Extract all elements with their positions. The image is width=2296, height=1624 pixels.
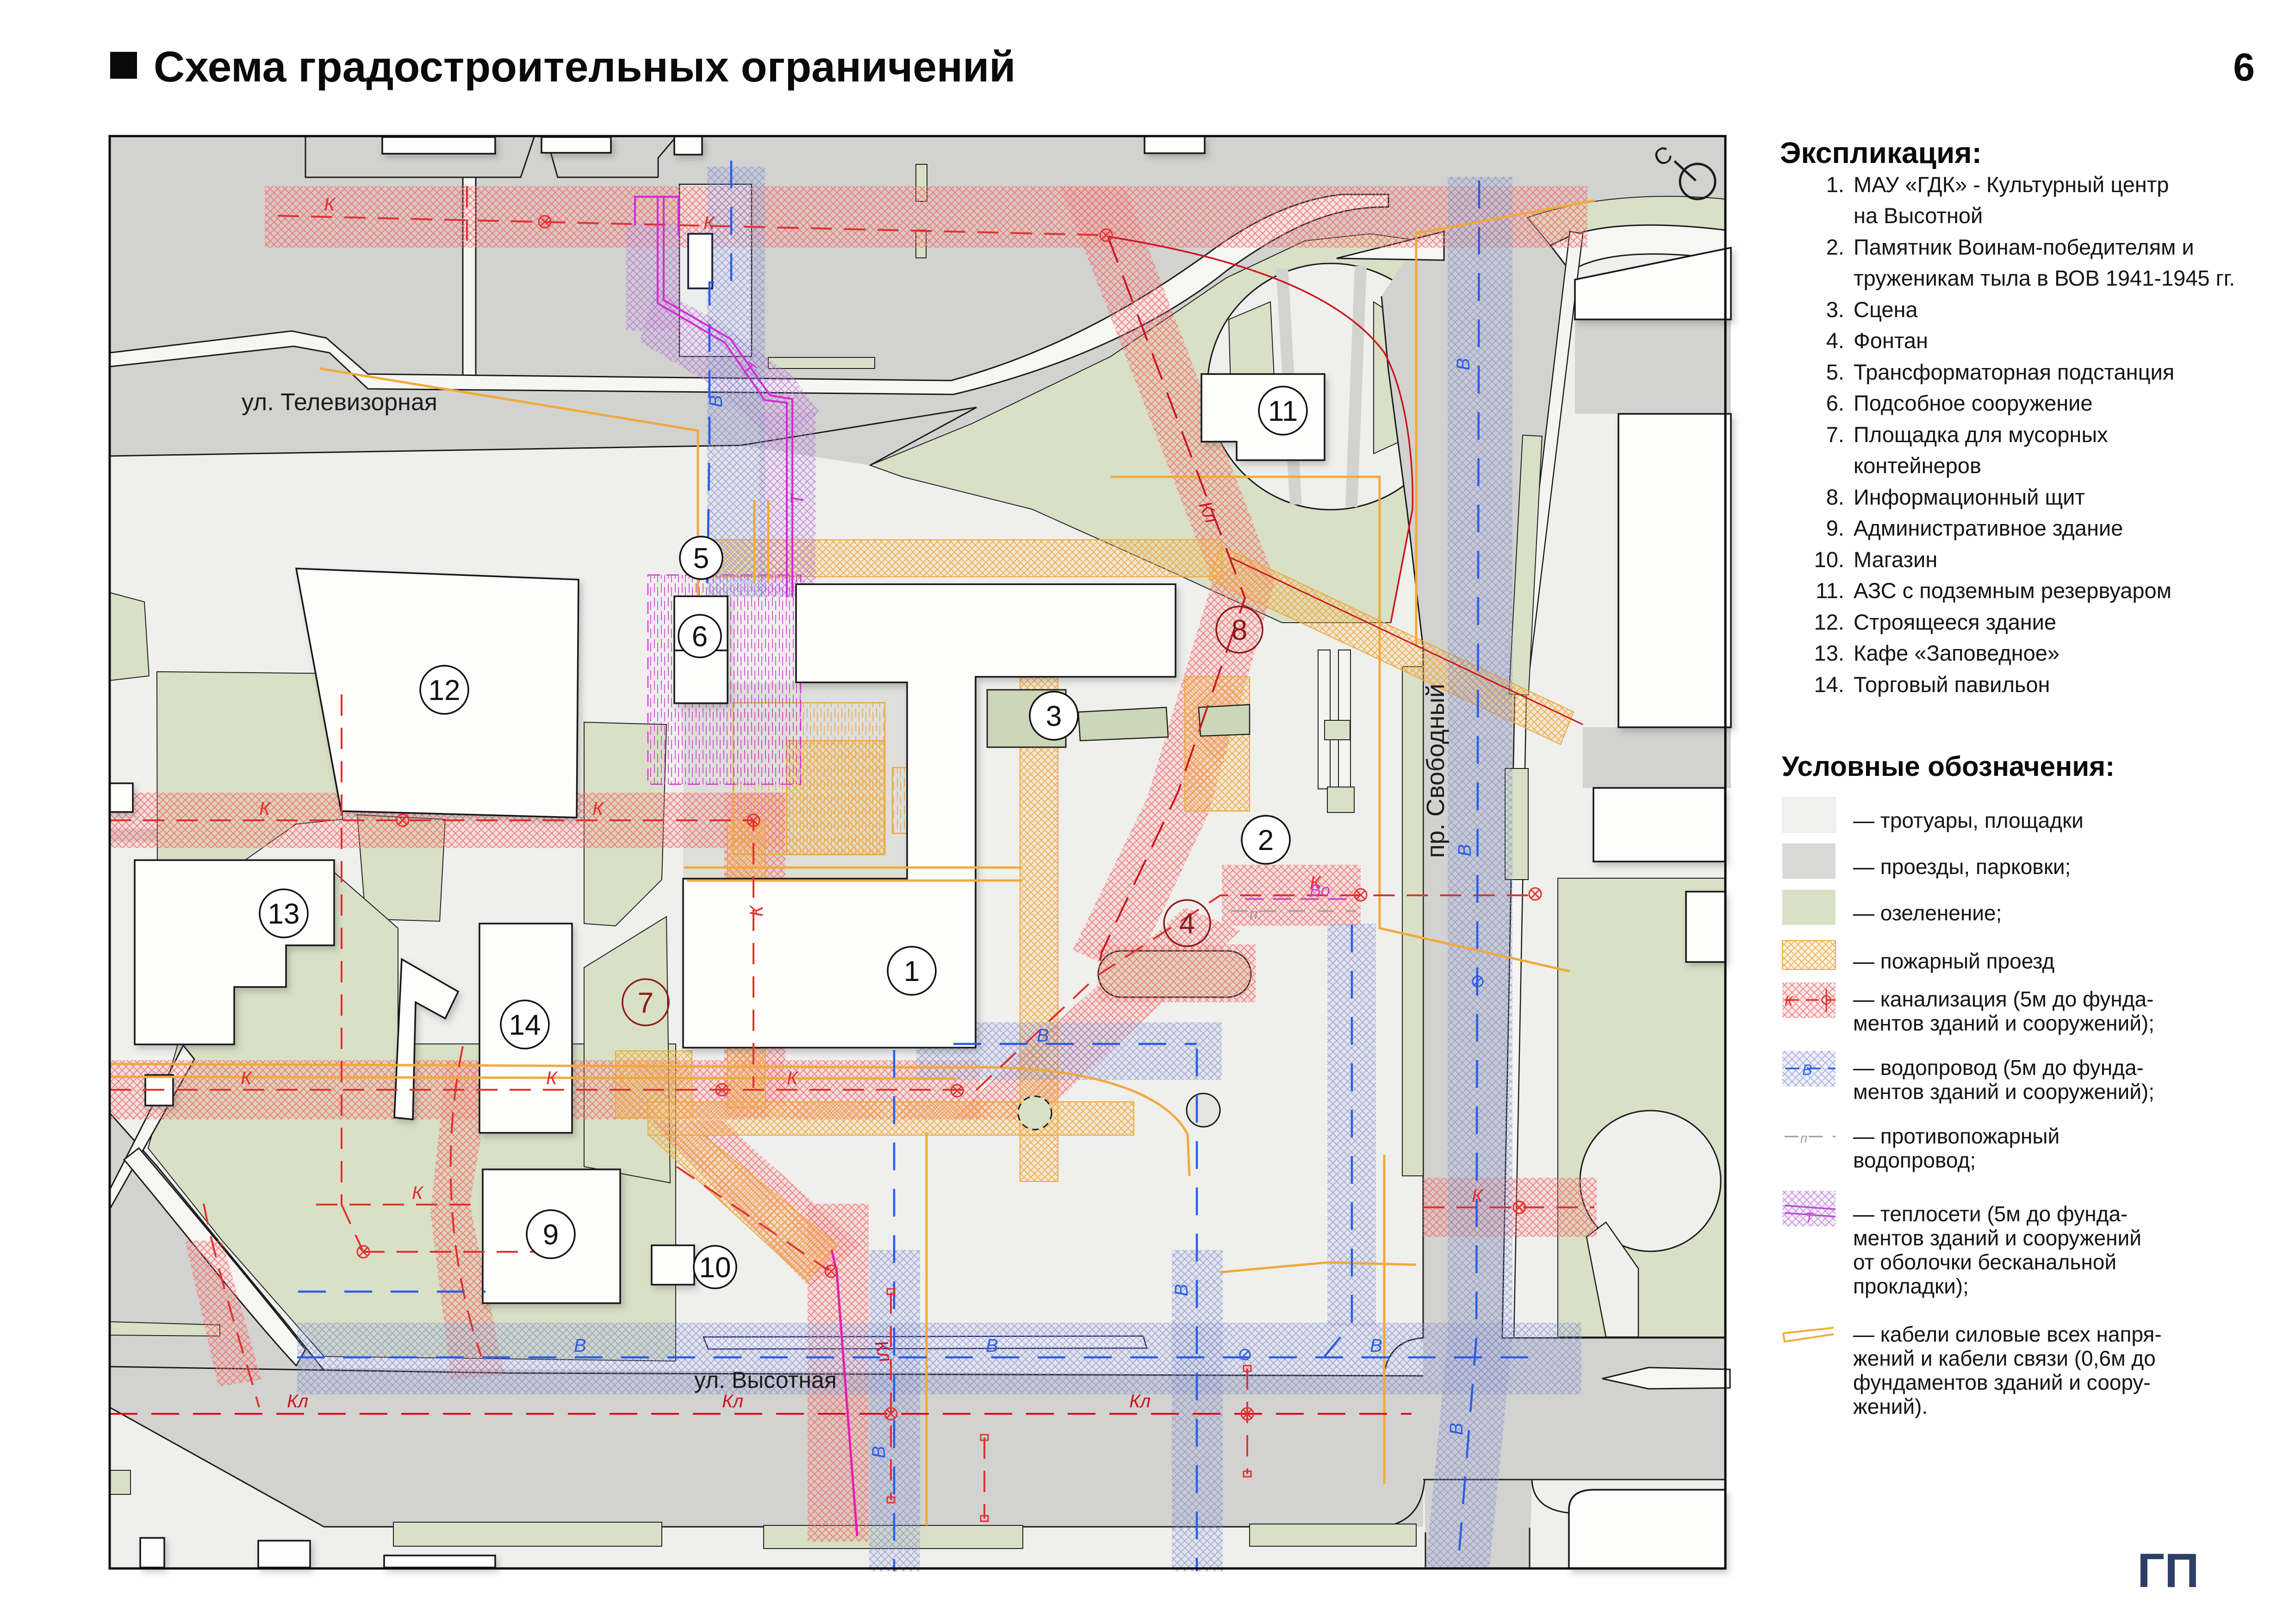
svg-text:3: 3 <box>1046 700 1062 732</box>
svg-text:6: 6 <box>2233 45 2255 89</box>
svg-text:6: 6 <box>692 621 708 653</box>
svg-text:9: 9 <box>543 1219 559 1251</box>
svg-text:8.: 8. <box>1826 485 1844 509</box>
svg-text:— проезды, парковки;: — проезды, парковки; <box>1853 855 2071 879</box>
svg-text:В: В <box>1446 1423 1467 1435</box>
svg-text:11: 11 <box>1268 395 1298 427</box>
svg-text:1: 1 <box>904 956 920 987</box>
svg-text:Площадка для мусорных: Площадка для мусорных <box>1854 422 2108 447</box>
svg-text:МАУ «ГДК» - Культурный центр: МАУ «ГДК» - Культурный центр <box>1854 172 2169 197</box>
svg-text:Во: Во <box>1310 881 1330 899</box>
svg-text:труженикам тыла в ВОВ 1941-194: труженикам тыла в ВОВ 1941-1945 гг. <box>1854 266 2235 290</box>
svg-text:Кл: Кл <box>287 1391 308 1412</box>
svg-text:В: В <box>1171 1284 1192 1296</box>
svg-text:Экспликация:: Экспликация: <box>1780 136 1982 169</box>
svg-text:13.: 13. <box>1814 641 1844 665</box>
svg-text:2.: 2. <box>1826 235 1844 259</box>
svg-text:К: К <box>1472 1186 1484 1206</box>
svg-text:— теплосети (5м до фунда-: — теплосети (5м до фунда- <box>1853 1202 2128 1226</box>
svg-text:Трансформаторная подстанция: Трансформаторная подстанция <box>1854 360 2174 384</box>
svg-text:ментов зданий и сооружений);: ментов зданий и сооружений); <box>1853 1011 2154 1035</box>
svg-text:— кабели силовые всех напря-: — кабели силовые всех напря- <box>1853 1322 2162 1346</box>
svg-text:4.: 4. <box>1826 328 1844 353</box>
svg-text:ул. Телевизорная: ул. Телевизорная <box>242 389 437 416</box>
svg-text:ментов зданий и сооружений);: ментов зданий и сооружений); <box>1853 1080 2154 1104</box>
svg-text:ул. Высотная: ул. Высотная <box>694 1367 837 1393</box>
svg-text:— канализация (5м до фунда: — канализация (5м до фунда- <box>1853 987 2153 1011</box>
svg-text:п: п <box>1250 906 1258 922</box>
svg-text:Условные обозначения:: Условные обозначения: <box>1782 751 2115 782</box>
svg-text:К: К <box>546 1068 558 1088</box>
svg-text:4: 4 <box>1179 908 1195 940</box>
svg-text:В: В <box>1370 1336 1382 1356</box>
svg-text:5.: 5. <box>1826 360 1844 384</box>
svg-text:13: 13 <box>268 898 300 930</box>
svg-text:2: 2 <box>1258 824 1274 856</box>
svg-text:ментов зданий и сооружений: ментов зданий и сооружений <box>1853 1226 2141 1250</box>
svg-text:В: В <box>1037 1025 1049 1046</box>
svg-text:п: п <box>1800 1131 1807 1145</box>
svg-text:жений и кабели связи (0,6м до: жений и кабели связи (0,6м до <box>1853 1346 2156 1370</box>
svg-text:7.: 7. <box>1826 422 1844 447</box>
svg-text:К: К <box>241 1068 253 1088</box>
svg-text:Строящееся здание: Строящееся здание <box>1854 610 2056 634</box>
svg-text:К: К <box>787 1068 799 1088</box>
svg-text:К: К <box>324 194 336 215</box>
svg-text:— тротуары, площадки: — тротуары, площадки <box>1853 808 2084 832</box>
svg-text:9.: 9. <box>1826 516 1844 540</box>
svg-text:АЗС с подземным резервуаром: АЗС с подземным резервуаром <box>1854 578 2172 603</box>
svg-text:от оболочки бесканальной: от оболочки бесканальной <box>1853 1250 2116 1274</box>
svg-text:К: К <box>703 213 716 233</box>
svg-text:Информационный щит: Информационный щит <box>1854 485 2085 509</box>
svg-text:К: К <box>259 799 271 819</box>
svg-text:пр. Свободный: пр. Свободный <box>1422 684 1450 858</box>
svg-text:Схема градостроительных ограни: Схема градостроительных ограничений <box>154 43 1015 91</box>
svg-text:6.: 6. <box>1826 391 1844 415</box>
svg-text:— водопровод (5м до фунда-: — водопровод (5м до фунда- <box>1853 1056 2144 1080</box>
svg-text:Кл: Кл <box>722 1391 743 1412</box>
svg-text:Т: Т <box>788 493 807 505</box>
svg-text:контейнеров: контейнеров <box>1854 453 1981 478</box>
svg-text:Сцена: Сцена <box>1854 297 1918 322</box>
svg-text:— пожарный проезд: — пожарный проезд <box>1853 949 2054 973</box>
svg-text:Кафе «Заповедное»: Кафе «Заповедное» <box>1854 641 2060 665</box>
svg-text:Кл: Кл <box>1129 1391 1151 1412</box>
svg-text:12.: 12. <box>1814 610 1844 634</box>
svg-text:В: В <box>706 395 726 407</box>
svg-text:В: В <box>1802 1062 1812 1078</box>
svg-text:7: 7 <box>638 987 653 1019</box>
svg-text:8: 8 <box>1232 614 1247 646</box>
svg-text:Т: Т <box>1805 1210 1815 1225</box>
svg-text:В: В <box>869 1446 889 1458</box>
svg-text:Памятник Воинам-победителям и: Памятник Воинам-победителям и <box>1854 235 2194 259</box>
svg-text:К: К <box>592 799 604 819</box>
svg-text:жений).: жений). <box>1853 1394 1928 1418</box>
svg-text:11.: 11. <box>1816 578 1844 603</box>
svg-text:Торговый павильон: Торговый павильон <box>1854 672 2050 697</box>
svg-text:Административное здание: Административное здание <box>1854 516 2123 540</box>
svg-text:14.: 14. <box>1814 672 1844 697</box>
svg-text:К: К <box>412 1183 424 1203</box>
svg-text:1.: 1. <box>1826 172 1844 197</box>
svg-text:В: В <box>1453 358 1474 370</box>
svg-text:водопровод;: водопровод; <box>1853 1148 1976 1172</box>
svg-text:5: 5 <box>693 543 709 575</box>
svg-text:14: 14 <box>509 1009 541 1041</box>
svg-text:12: 12 <box>429 675 460 706</box>
svg-text:В: В <box>574 1336 586 1356</box>
svg-text:на Высотной: на Высотной <box>1854 203 1983 228</box>
svg-text:В: В <box>1455 844 1475 856</box>
svg-text:К: К <box>747 905 767 917</box>
svg-text:— противопожарный: — противопожарный <box>1853 1124 2060 1148</box>
svg-text:ГП: ГП <box>2137 1544 2199 1598</box>
svg-text:3.: 3. <box>1826 297 1844 322</box>
svg-text:К: К <box>1785 993 1794 1009</box>
svg-text:В: В <box>986 1336 998 1356</box>
svg-text:Подсобное сооружение: Подсобное сооружение <box>1854 391 2093 415</box>
svg-text:— озеленение;: — озеленение; <box>1853 901 2002 925</box>
svg-text:фундаментов зданий и соору-: фундаментов зданий и соору- <box>1853 1370 2151 1394</box>
svg-text:Фонтан: Фонтан <box>1854 328 1928 353</box>
svg-text:прокладки);: прокладки); <box>1853 1274 1969 1298</box>
svg-text:Магазин: Магазин <box>1854 547 1937 572</box>
svg-text:10.: 10. <box>1814 547 1844 572</box>
svg-text:10: 10 <box>699 1252 731 1284</box>
